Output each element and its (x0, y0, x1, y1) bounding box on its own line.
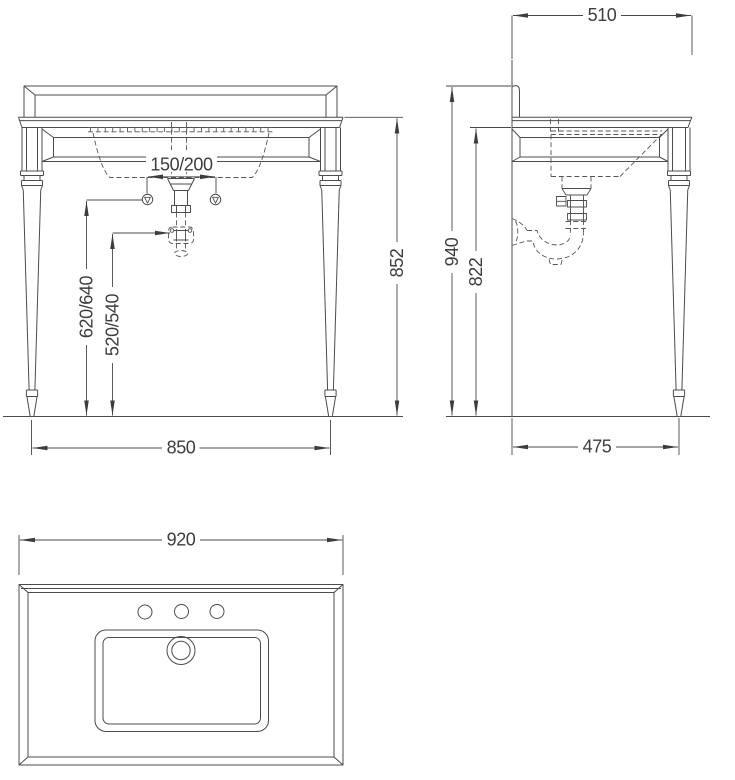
faucet-hole-left (138, 605, 152, 619)
dim-label-940: 940 (442, 237, 462, 266)
countertop-side (512, 117, 692, 127)
dim-side-depth: 510 (512, 5, 692, 59)
dim-tap-centres: 150/200 (146, 150, 217, 194)
countertop-plan (19, 585, 343, 766)
leg-front-left (21, 128, 44, 417)
dim-label-supply-height: 620/640 (77, 275, 97, 338)
faucet-hole-right (210, 605, 224, 619)
technical-drawing-page: 150/200 620/640 520/540 850 852 (0, 0, 735, 780)
backsplash-front (24, 86, 337, 117)
dim-label-475: 475 (583, 437, 612, 457)
drain-assembly-side (557, 189, 592, 221)
dim-floor-depth: 475 (512, 418, 679, 457)
overflow-hole-plan (167, 637, 195, 665)
dim-top-width: 920 (19, 530, 343, 576)
countertop-front (19, 117, 344, 127)
dim-label-822: 822 (466, 257, 486, 286)
basin-hidden-outline-side (551, 119, 663, 189)
dim-waste-height: 520/540 (103, 233, 171, 416)
p-trap-hidden-side (512, 219, 587, 265)
side-view: 510 940 822 475 (442, 5, 710, 457)
dim-label-tap-centres: 150/200 (150, 155, 213, 175)
front-view: 150/200 620/640 520/540 850 852 (3, 86, 407, 458)
dim-overall-height: 940 (442, 86, 511, 416)
basin-plan (95, 630, 269, 732)
dim-label-510: 510 (588, 5, 617, 25)
dim-label-waste-height: 520/540 (103, 293, 123, 356)
leg-front-right (319, 128, 342, 417)
dim-front-width: 850 (32, 420, 331, 458)
faucet-hole-center (175, 605, 189, 619)
dim-label-852: 852 (387, 248, 407, 277)
drain-assembly-front (168, 179, 195, 257)
leg-side (668, 128, 691, 417)
angle-valve-icon-left (142, 194, 152, 204)
backsplash-side (512, 86, 520, 118)
dim-underside-height: 822 (466, 128, 511, 416)
washstand-dimension-drawing: 150/200 620/640 520/540 850 852 (0, 0, 735, 780)
dim-label-850: 850 (167, 438, 196, 458)
top-view: 920 (19, 530, 343, 766)
dim-label-920: 920 (167, 530, 196, 550)
apron-side (512, 129, 668, 162)
angle-valve-icon-right (210, 194, 220, 204)
dim-front-height: 852 (345, 117, 408, 415)
